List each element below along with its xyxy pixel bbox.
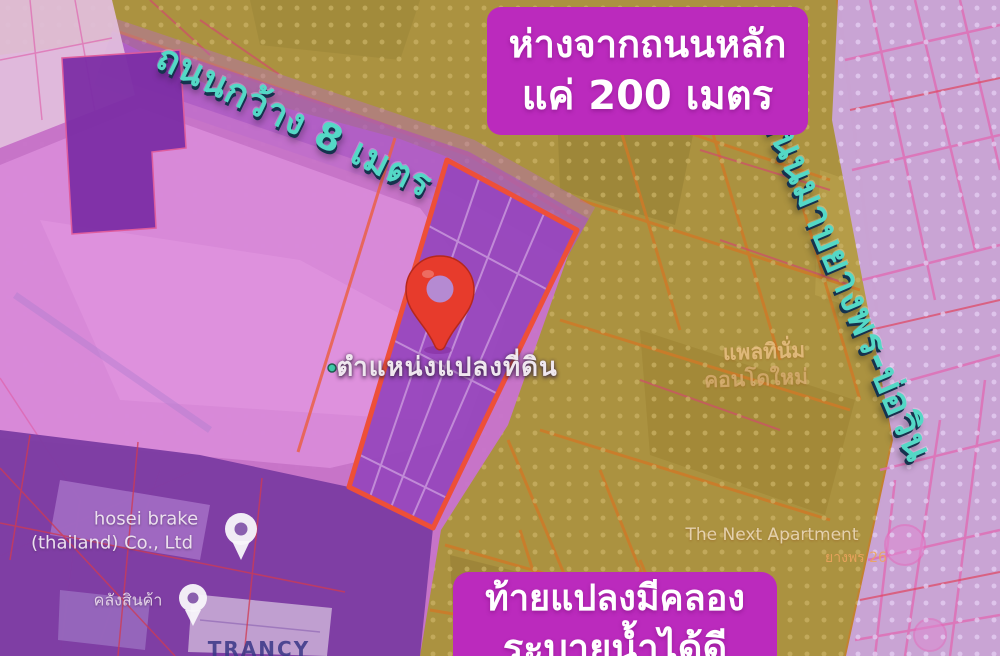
plot-location-label: ตำแหน่งแปลงที่ดิน (336, 347, 558, 388)
map-label-factory: (thailand) Co., Ltd (31, 533, 193, 554)
distance-callout-line2: แค่ 200 เมตร (522, 72, 773, 120)
map-label-factory: hosei brake (94, 509, 198, 530)
map-label-company: TRANCY (208, 637, 310, 656)
canal-callout-box: ท้ายแปลงมีคลอง ระบายน้ำได้ดี (453, 572, 777, 656)
canal-callout-line1: ท้ายแปลงมีคลอง (485, 576, 745, 623)
map-label-warehouse: คลังสินค้า (94, 589, 163, 614)
map-label-condo: คอนโดใหม่ (704, 361, 809, 398)
distance-callout-box: ห่างจากถนนหลัก แค่ 200 เมตร (487, 7, 808, 135)
map-label-soi: ยางพร 26 (825, 547, 887, 569)
distance-callout-line1: ห่างจากถนนหลัก (509, 22, 787, 68)
small-marker-icon (328, 364, 336, 372)
map-label-apartment: The Next Apartment (686, 525, 859, 545)
canal-callout-line2: ระบายน้ำได้ดี (503, 625, 727, 656)
annotated-map-image: ถนนกว้าง 8 เมตร ถนนมาบยางพร-บ่อวิน ตำแหน… (0, 0, 1000, 656)
